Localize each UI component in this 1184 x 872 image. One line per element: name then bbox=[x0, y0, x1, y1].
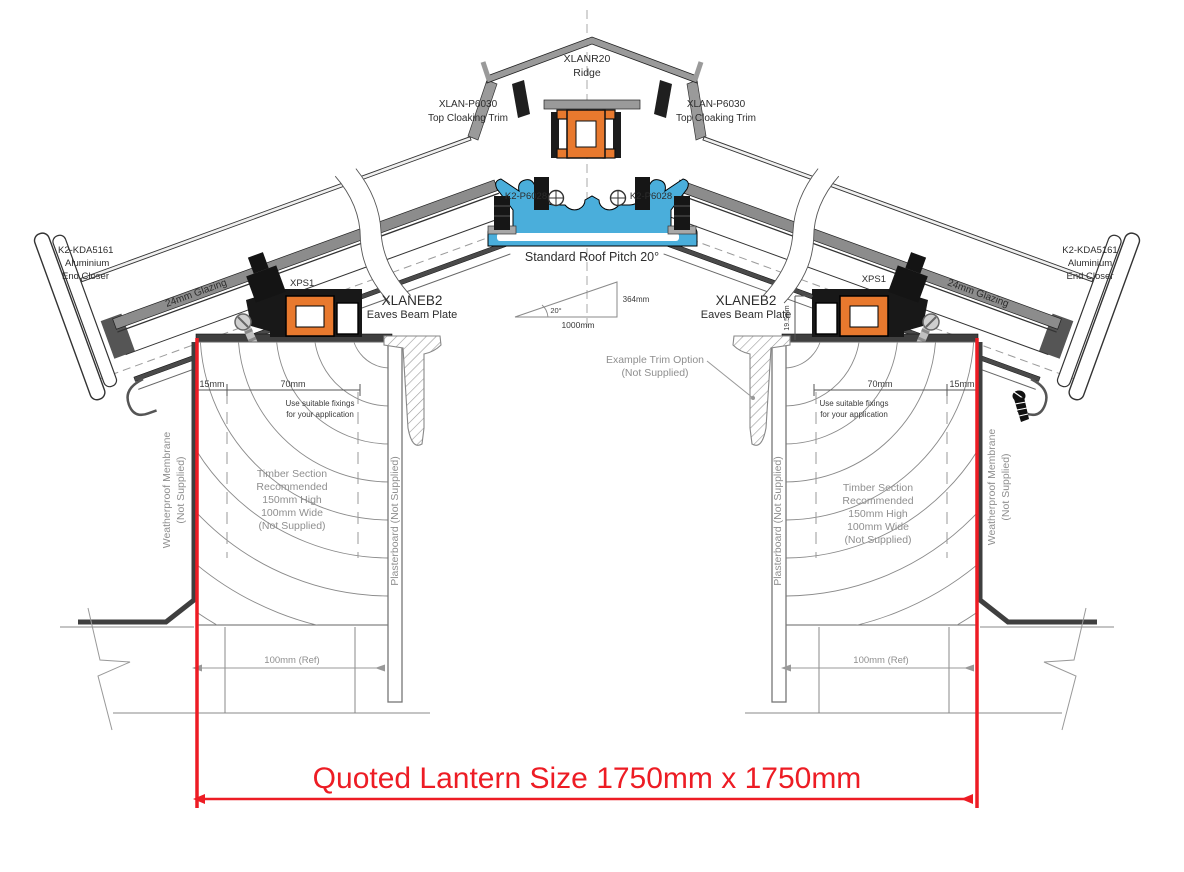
right-dim-70-label: 70mm bbox=[867, 379, 892, 389]
right-timber-note-l5: (Not Supplied) bbox=[844, 534, 911, 546]
right-wall bbox=[745, 608, 1114, 730]
left-timber-note-l5: (Not Supplied) bbox=[258, 520, 325, 532]
right-break-symbol bbox=[1044, 608, 1086, 730]
right-plasterboard-label: Plasterboard (Not Supplied) bbox=[772, 456, 784, 586]
left-fixings-note-l1: Use suitable fixings bbox=[286, 399, 355, 408]
left-wall bbox=[60, 608, 430, 730]
left-eaves-code-label: XLANEB2 bbox=[382, 293, 443, 308]
left-dim-15-label: 15mm bbox=[199, 379, 224, 389]
left-wall-ref-label: 100mm (Ref) bbox=[264, 655, 319, 666]
pitch-triangle bbox=[515, 282, 617, 317]
right-timber-note-l2: Recommended bbox=[842, 495, 913, 507]
right-timber-note-l1: Timber Section bbox=[843, 482, 913, 494]
right-fixings-note-l1: Use suitable fixings bbox=[820, 399, 889, 408]
left-xps-label: XPS1 bbox=[290, 278, 314, 289]
left-end-closer-l1-label: Aluminium bbox=[65, 258, 109, 269]
left-end-closer-l2-label: End Closer bbox=[62, 271, 109, 282]
pitch-angle-label: 20° bbox=[550, 306, 561, 315]
left-timber-note-l1: Timber Section bbox=[257, 468, 327, 480]
ridge-code-label: XLANR20 bbox=[564, 53, 611, 65]
left-timber-note-l3: 150mm High bbox=[262, 494, 322, 506]
left-dim-70-label: 70mm bbox=[280, 379, 305, 389]
right-wall-ref-label: 100mm (Ref) bbox=[853, 655, 908, 666]
right-fixings-note-l2: for your application bbox=[820, 410, 888, 419]
left-timber-note-l2: Recommended bbox=[256, 481, 327, 493]
left-fixings-note-l2: for your application bbox=[286, 410, 354, 419]
roof-pitch-label: Standard Roof Pitch 20° bbox=[525, 250, 659, 264]
pitch-rise-label: 364mm bbox=[623, 295, 650, 304]
left-eaves-name-label: Eaves Beam Plate bbox=[367, 309, 458, 321]
quoted-size-title: Quoted Lantern Size 1750mm x 1750mm bbox=[313, 762, 862, 795]
left-membrane-label-l1: Weatherproof Membrane bbox=[161, 432, 173, 549]
right-membrane-label-l2: (Not Supplied) bbox=[1000, 453, 1012, 520]
trim-option-label-l2: (Not Supplied) bbox=[621, 367, 688, 379]
right-top-trim-code-label: XLAN-P6030 bbox=[687, 99, 746, 110]
right-end-closer-code-label: K2-KDA5161 bbox=[1062, 245, 1117, 256]
left-timber-note-l4: 100mm Wide bbox=[261, 507, 323, 519]
right-dim-15-label: 15mm bbox=[949, 379, 974, 389]
right-end-closer-l1-label: Aluminium bbox=[1068, 258, 1112, 269]
left-glazing-bar-code-label: K2-P6028 bbox=[505, 191, 547, 202]
right-end-closer-l2-label: End Closer bbox=[1067, 271, 1114, 282]
screw-icon bbox=[1013, 391, 1030, 423]
right-eaves-code-label: XLANEB2 bbox=[716, 293, 777, 308]
right-xps-label: XPS1 bbox=[862, 274, 886, 285]
right-eaves-name-label: Eaves Beam Plate bbox=[701, 309, 792, 321]
trim-option-leader bbox=[707, 361, 753, 398]
left-plasterboard-label: Plasterboard (Not Supplied) bbox=[389, 456, 401, 586]
lantern-cross-section-diagram: XLANR20 Ridge XLAN-P6030 Top Cloaking Tr… bbox=[0, 0, 1184, 872]
left-top-trim-code-label: XLAN-P6030 bbox=[439, 99, 498, 110]
beam-height-label: 19.5mm bbox=[784, 305, 791, 330]
left-membrane-label-l2: (Not Supplied) bbox=[175, 456, 187, 523]
ridge-name-label: Ridge bbox=[573, 67, 601, 79]
right-glazing-bar-bracket bbox=[674, 196, 690, 230]
right-timber-note-l3: 150mm High bbox=[848, 508, 908, 520]
pitch-run-label: 1000mm bbox=[561, 320, 594, 330]
trim-option-label-l1: Example Trim Option bbox=[606, 354, 704, 366]
lantern-cross-section-page: XLANR20 Ridge XLAN-P6030 Top Cloaking Tr… bbox=[0, 0, 1184, 872]
right-top-trim-name-label: Top Cloaking Trim bbox=[676, 113, 756, 124]
right-membrane-label-l1: Weatherproof Membrane bbox=[986, 429, 998, 546]
right-timber-note-l4: 100mm Wide bbox=[847, 521, 909, 533]
left-top-trim-name-label: Top Cloaking Trim bbox=[428, 113, 508, 124]
left-end-closer-code-label: K2-KDA5161 bbox=[58, 245, 113, 256]
left-break-symbol bbox=[88, 608, 130, 730]
ridge-thermal-core bbox=[557, 110, 615, 158]
right-glazing-bar-code-label: K2-P6028 bbox=[630, 191, 672, 202]
